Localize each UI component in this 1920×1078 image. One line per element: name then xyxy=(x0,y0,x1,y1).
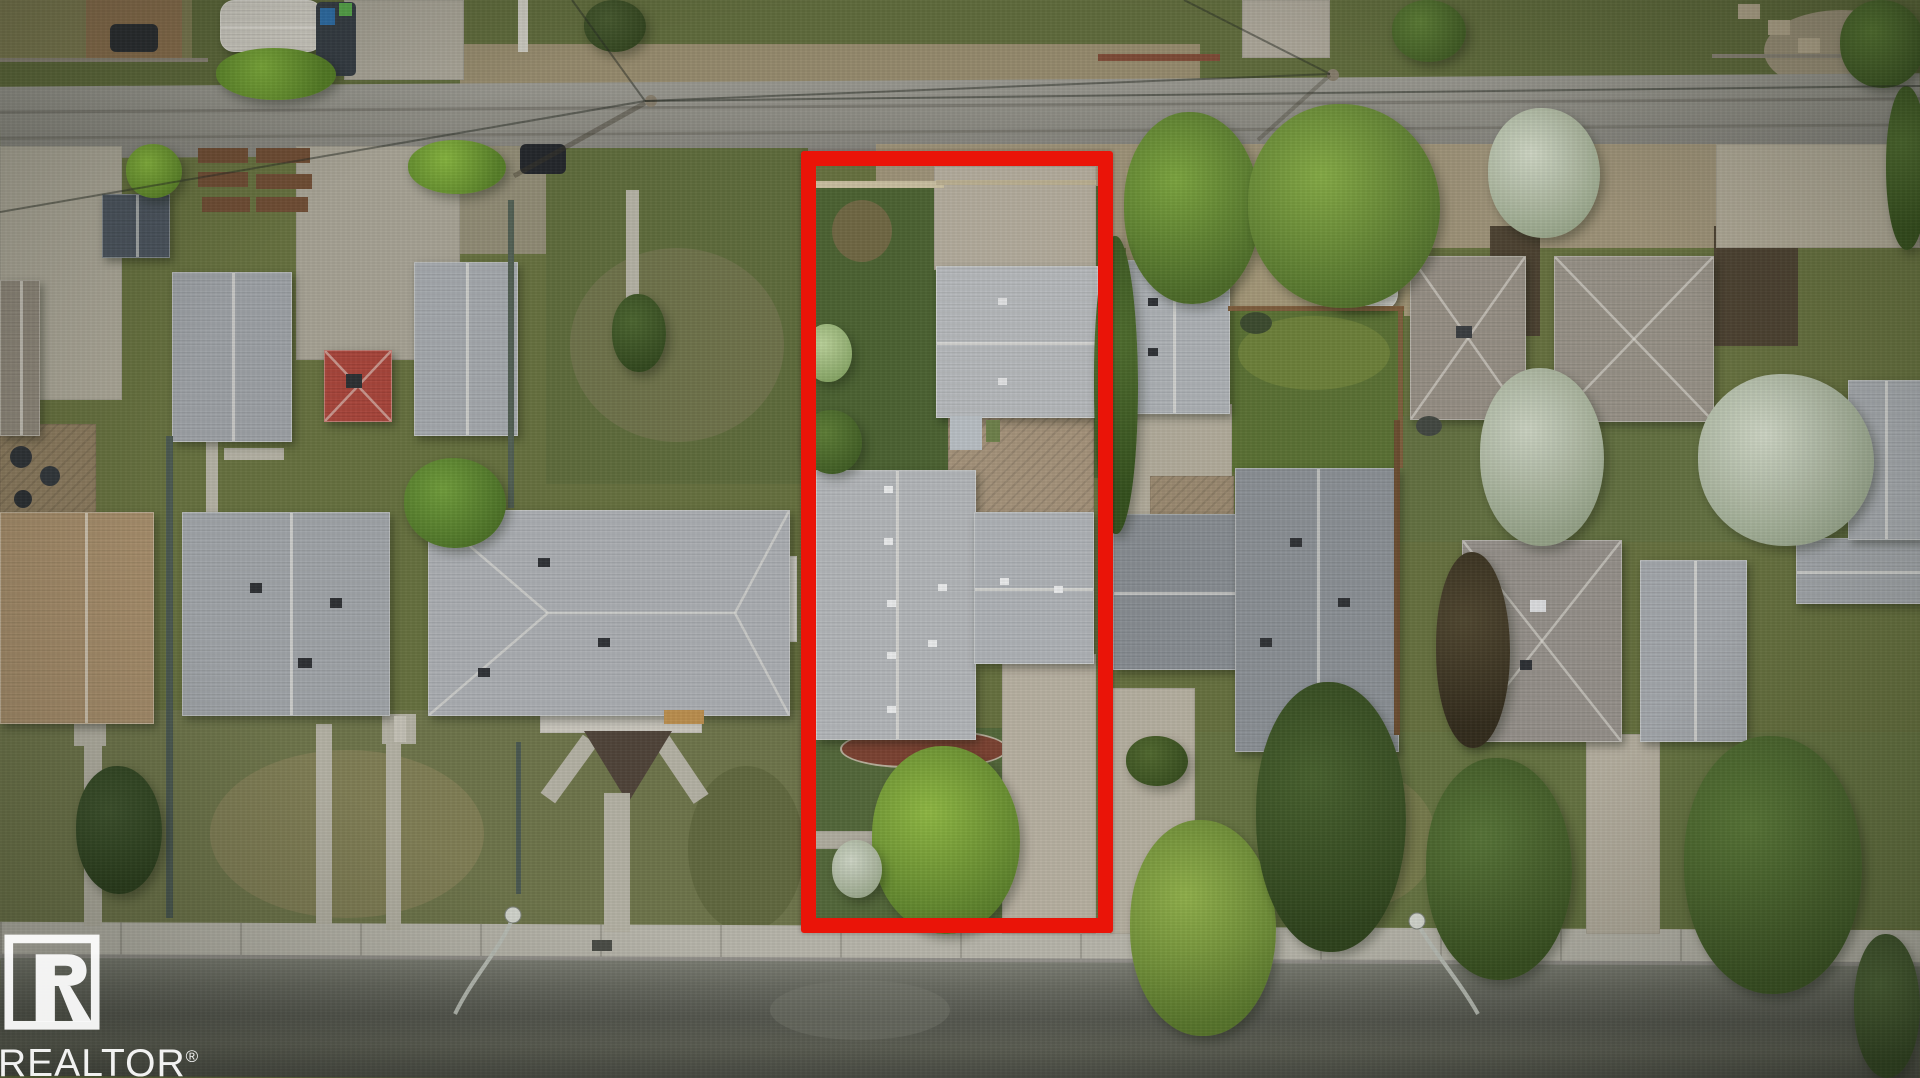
blue-shed xyxy=(102,194,170,258)
right-back-lawn xyxy=(1226,306,1404,472)
north-house-a xyxy=(172,272,292,442)
right-lawn-dandelions xyxy=(1238,316,1390,390)
red-brown-fence-top-right xyxy=(1098,54,1220,61)
gray-house-3-ridges xyxy=(429,511,789,715)
house3-walk-right-branch xyxy=(653,734,708,804)
realtor-wordmark: REALTOR® xyxy=(0,1042,199,1078)
power-line-1 xyxy=(0,101,645,212)
tan-roof-house-ridge xyxy=(85,513,88,723)
north-house-b xyxy=(414,262,518,436)
dandelion-dirt-top-left xyxy=(0,0,192,62)
right-yard-trampoline xyxy=(1240,312,1272,334)
bright-tree-1 xyxy=(1124,112,1260,304)
bright-bush-center xyxy=(408,140,506,194)
street-worn-patch xyxy=(770,980,950,1040)
left-edge-house-ridge xyxy=(20,281,23,435)
garden-planter-6 xyxy=(256,197,308,212)
front-bush-right-house xyxy=(1126,736,1188,786)
garden-planter-3 xyxy=(198,172,248,187)
red-gazebo-roof-ridges xyxy=(325,351,391,421)
patio-slab-tr-3 xyxy=(1798,38,1820,53)
garden-planter-1 xyxy=(198,148,248,163)
house2-side-stoop xyxy=(382,714,416,744)
boulevard-tree-right-3 xyxy=(1684,736,1862,994)
blue-bin xyxy=(320,8,335,25)
street-light-right-head xyxy=(1409,913,1425,929)
gray-house-2-ridge xyxy=(290,513,293,715)
corner-tree-top-right xyxy=(1840,0,1920,88)
corner-tree-bottom-right xyxy=(1854,934,1920,1078)
right-neighbor-house-wing-ridge xyxy=(1114,592,1236,595)
stoop-ladder xyxy=(394,716,406,742)
north-garden-walk xyxy=(206,436,218,520)
catch-basin-1 xyxy=(592,940,612,951)
bright-hedge xyxy=(216,48,336,100)
pole-shadow-a xyxy=(514,103,645,176)
garden-planter-4 xyxy=(256,174,312,189)
garden-planter-2 xyxy=(256,148,310,163)
dirt-garden-top-left xyxy=(86,0,182,58)
dark-bush-front-left xyxy=(76,766,162,894)
alley-dirt-shoulder xyxy=(460,44,1200,94)
north-house-b-ridge xyxy=(466,263,469,435)
power-pole-a xyxy=(645,95,657,107)
flowering-tree-mid xyxy=(1480,368,1604,546)
chainlink-fence-left xyxy=(166,436,173,918)
north-slab-row xyxy=(224,448,284,460)
gray-house-2 xyxy=(182,512,390,716)
white-quonset-ridge xyxy=(221,26,321,29)
top-right-small-pad xyxy=(1242,0,1330,58)
power-line-5 xyxy=(1184,0,1330,74)
partial-roof-ne xyxy=(1796,538,1920,604)
deck-bin-3 xyxy=(14,490,32,508)
house2-walk xyxy=(316,724,332,924)
white-utility-post xyxy=(518,0,528,52)
street-light-left-head xyxy=(505,907,521,923)
house2-side-walk xyxy=(386,744,401,930)
house3-walk-left-branch xyxy=(541,735,598,804)
patio-slab-tr-2 xyxy=(1768,20,1790,35)
flowering-tree-top xyxy=(1488,108,1600,238)
street xyxy=(0,958,1920,1078)
car-center-top xyxy=(520,144,566,174)
curb xyxy=(0,954,1920,967)
north-bushes xyxy=(404,458,506,548)
dark-trees-right xyxy=(1256,682,1406,952)
realtor-watermark: REALTOR® xyxy=(4,934,199,1078)
registered-symbol: ® xyxy=(186,1047,200,1066)
deck-bin-1 xyxy=(10,446,32,468)
gray-house-d xyxy=(1640,560,1747,742)
gray-house-d-ridge xyxy=(1694,561,1697,741)
dark-tree-top xyxy=(584,0,646,52)
flowering-tree-right xyxy=(1698,374,1874,546)
car-top-left xyxy=(110,24,158,52)
house3-walk-stem xyxy=(604,793,630,932)
realtor-logo-icon xyxy=(4,934,100,1036)
aerial-photo: REALTOR® xyxy=(0,0,1920,1078)
alley-tire-track-2 xyxy=(0,123,1920,139)
bright-tree-2 xyxy=(1248,104,1440,308)
dark-brush-between-houses xyxy=(1436,552,1510,748)
mulch-garden-b xyxy=(1714,226,1798,346)
power-line-2 xyxy=(645,86,1920,101)
left-edge-house xyxy=(0,280,40,436)
property-boundary-outline xyxy=(801,151,1113,933)
tree-top-mid-right xyxy=(1392,0,1466,62)
right-side-fence-top xyxy=(1398,306,1403,468)
power-pole-b xyxy=(1327,69,1339,81)
tan-roof-house xyxy=(0,512,154,724)
right-neighbor-house-wing xyxy=(1113,514,1237,670)
green-bin xyxy=(339,3,352,16)
blue-shed-ridge xyxy=(136,195,139,257)
bright-bush-left xyxy=(126,144,182,198)
green-strip-right-edge xyxy=(1886,86,1920,250)
north-house-a-ridge xyxy=(232,273,235,441)
deck-bin-2 xyxy=(40,466,60,486)
street-light-left-pole xyxy=(455,917,513,1014)
fence-top-left xyxy=(0,58,208,62)
partial-roof-right-ridge xyxy=(1885,381,1888,539)
partial-roof-ne-ridge xyxy=(1797,571,1920,574)
dark-bush-center xyxy=(612,294,666,372)
center-backyard-grass xyxy=(546,148,808,484)
red-gazebo-roof xyxy=(324,350,392,422)
front-fence-stub xyxy=(516,742,521,894)
alley-tire-track-1 xyxy=(0,97,1920,113)
patio-slab-tr-1 xyxy=(1738,4,1760,19)
boulevard-tree-right-2 xyxy=(1426,758,1572,980)
garden-planter-5 xyxy=(202,197,250,212)
right-neighbor-steps xyxy=(1150,476,1234,516)
house3-walk-mulch-triangle xyxy=(584,731,672,803)
white-quonset xyxy=(220,0,322,52)
front-dead-grass-left xyxy=(210,750,484,918)
center-backyard-dead-patch xyxy=(570,248,784,442)
power-line-4 xyxy=(645,74,1330,101)
front-lawn-dark-mottle xyxy=(688,766,804,932)
top-concrete-pad xyxy=(344,0,464,80)
boulevard-tree-right-1 xyxy=(1130,820,1276,1036)
far-right-driveway xyxy=(1586,734,1660,934)
